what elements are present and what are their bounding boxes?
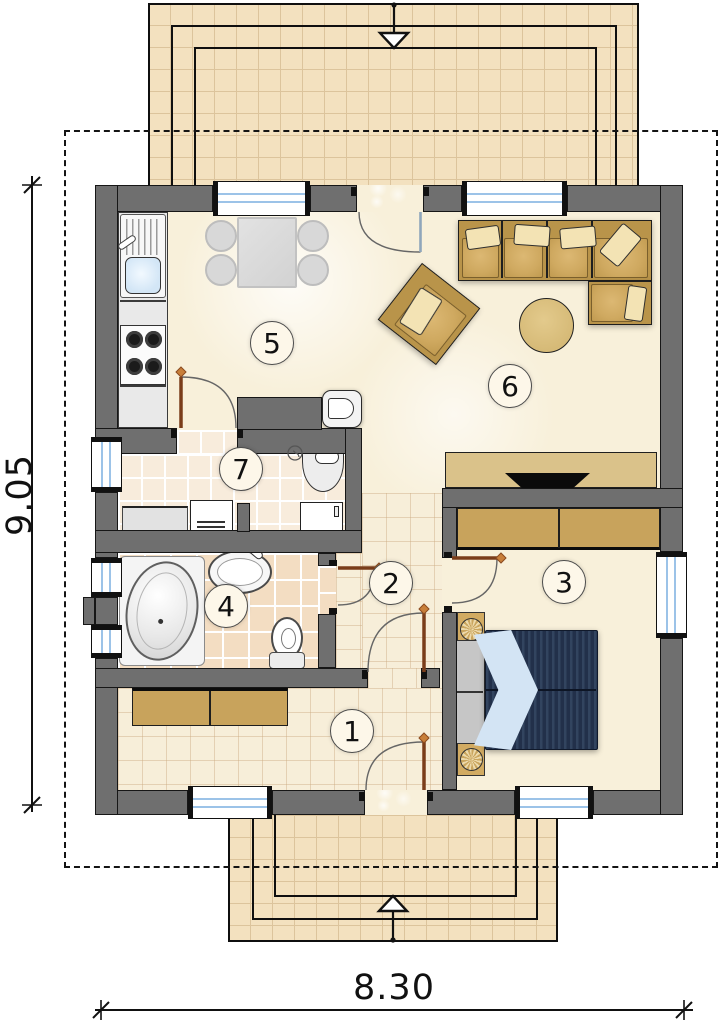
drain-spiral-icon xyxy=(288,446,302,460)
room-label-living-room: 6 xyxy=(488,364,532,408)
corridor-hall-door xyxy=(368,604,429,672)
entrance-arrow-icon xyxy=(379,896,407,943)
dimension-width: 8.30 xyxy=(339,968,449,1008)
entrance-arrow-icon xyxy=(380,2,408,48)
hinge-dot-icon xyxy=(176,367,186,377)
room-number: 5 xyxy=(263,327,281,360)
room-number: 7 xyxy=(232,453,250,486)
dimension-value: 9.05 xyxy=(0,454,40,536)
room-number: 2 xyxy=(382,567,400,600)
room-number: 4 xyxy=(217,590,235,623)
room-label-bedroom: 3 xyxy=(542,560,586,604)
room-number: 3 xyxy=(555,566,573,599)
bedroom-door xyxy=(452,553,506,603)
room-number: 6 xyxy=(501,370,519,403)
room-label-corridor: 2 xyxy=(369,561,413,605)
linework-layer xyxy=(0,0,725,1024)
floor-plan: 1 2 3 4 5 6 7 9.05 8.30 xyxy=(0,0,725,1024)
dimension-height: 9.05 xyxy=(0,445,40,545)
top-entrance-door xyxy=(359,212,421,252)
room-label-utility: 7 xyxy=(219,447,263,491)
kitchen-utility-door xyxy=(176,367,236,428)
room-label-bathroom: 4 xyxy=(204,584,248,628)
room-label-entry-hall: 1 xyxy=(330,709,374,753)
room-label-kitchen: 5 xyxy=(250,321,294,365)
dimension-value: 8.30 xyxy=(353,968,435,1008)
room-number: 1 xyxy=(343,715,361,748)
main-entrance-door xyxy=(366,733,429,790)
